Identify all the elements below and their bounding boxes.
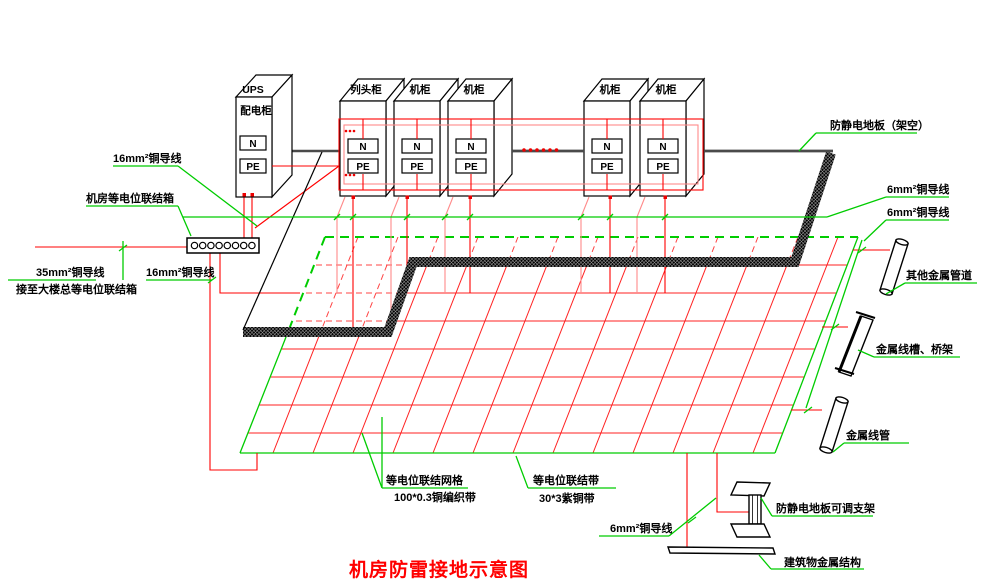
label-antistatic-floor: 防静电地板（架空） bbox=[830, 118, 929, 132]
diagram-canvas: N PE bbox=[0, 0, 1004, 583]
label-cable-tray: 金属线槽、桥架 bbox=[875, 342, 953, 356]
label-wire6-b: 6mm²铜导线 bbox=[887, 205, 949, 219]
metal-object-bonds bbox=[791, 240, 890, 413]
label-structure: 建筑物金属结构 bbox=[784, 555, 861, 569]
ups-n-label: N bbox=[249, 139, 256, 150]
label-grid-line1: 等电位联结网格 bbox=[385, 473, 464, 487]
green-bonding-bus bbox=[183, 214, 827, 220]
label-belt-line2: 30*3紫铜带 bbox=[539, 491, 595, 505]
bonding-terminal-box bbox=[187, 238, 259, 253]
label-bonding-box: 机房等电位联结箱 bbox=[86, 191, 174, 205]
label-wire16-mid: 16mm²铜导线 bbox=[146, 265, 214, 279]
label-wire6-bottom: 6mm²铜导线 bbox=[610, 521, 672, 535]
label-wire6-a: 6mm²铜导线 bbox=[887, 182, 949, 196]
floor-pedestal bbox=[731, 482, 770, 537]
label-to-building: 接至大楼总等电位联结箱 bbox=[16, 282, 137, 296]
ups-title-line1: UPS bbox=[242, 84, 264, 96]
bonding-box-wires bbox=[35, 166, 339, 470]
diagram-title: 机房防雷接地示意图 bbox=[349, 558, 529, 581]
label-wire35: 35mm²铜导线 bbox=[36, 265, 104, 279]
label-grid-line2: 100*0.3铜编织带 bbox=[394, 490, 476, 504]
label-bracket: 防静电地板可调支架 bbox=[776, 501, 875, 515]
label-wire16-top: 16mm²铜导线 bbox=[113, 151, 181, 165]
ups-title-line2: 配电柜 bbox=[240, 104, 272, 117]
label-conduit: 金属线管 bbox=[845, 428, 890, 442]
label-belt-line1: 等电位联结带 bbox=[532, 473, 599, 487]
cabinet-label-0: 列头柜 bbox=[350, 83, 382, 96]
cabinet-label-2: 机柜 bbox=[464, 83, 485, 96]
cabinet-label-3: 机柜 bbox=[600, 83, 621, 96]
cable-tray bbox=[835, 312, 875, 376]
cabinet-label-4: 机柜 bbox=[656, 83, 677, 96]
cabinet-label-1: 机柜 bbox=[410, 83, 431, 96]
building-structure-bar bbox=[668, 547, 775, 554]
equipotential-grid bbox=[236, 237, 862, 453]
machine-room-grounding-diagram: N PE bbox=[0, 0, 1004, 583]
ups-pe-label: PE bbox=[246, 162, 260, 173]
label-other-pipes: 其他金属管道 bbox=[906, 268, 972, 282]
metal-conduit bbox=[819, 396, 849, 455]
cabinet-ups: N PE UPS 配电柜 bbox=[236, 75, 292, 197]
other-metal-pipe bbox=[879, 238, 909, 297]
cabinet-row: 列头柜 机柜 机柜 机柜 机柜 bbox=[340, 79, 704, 196]
